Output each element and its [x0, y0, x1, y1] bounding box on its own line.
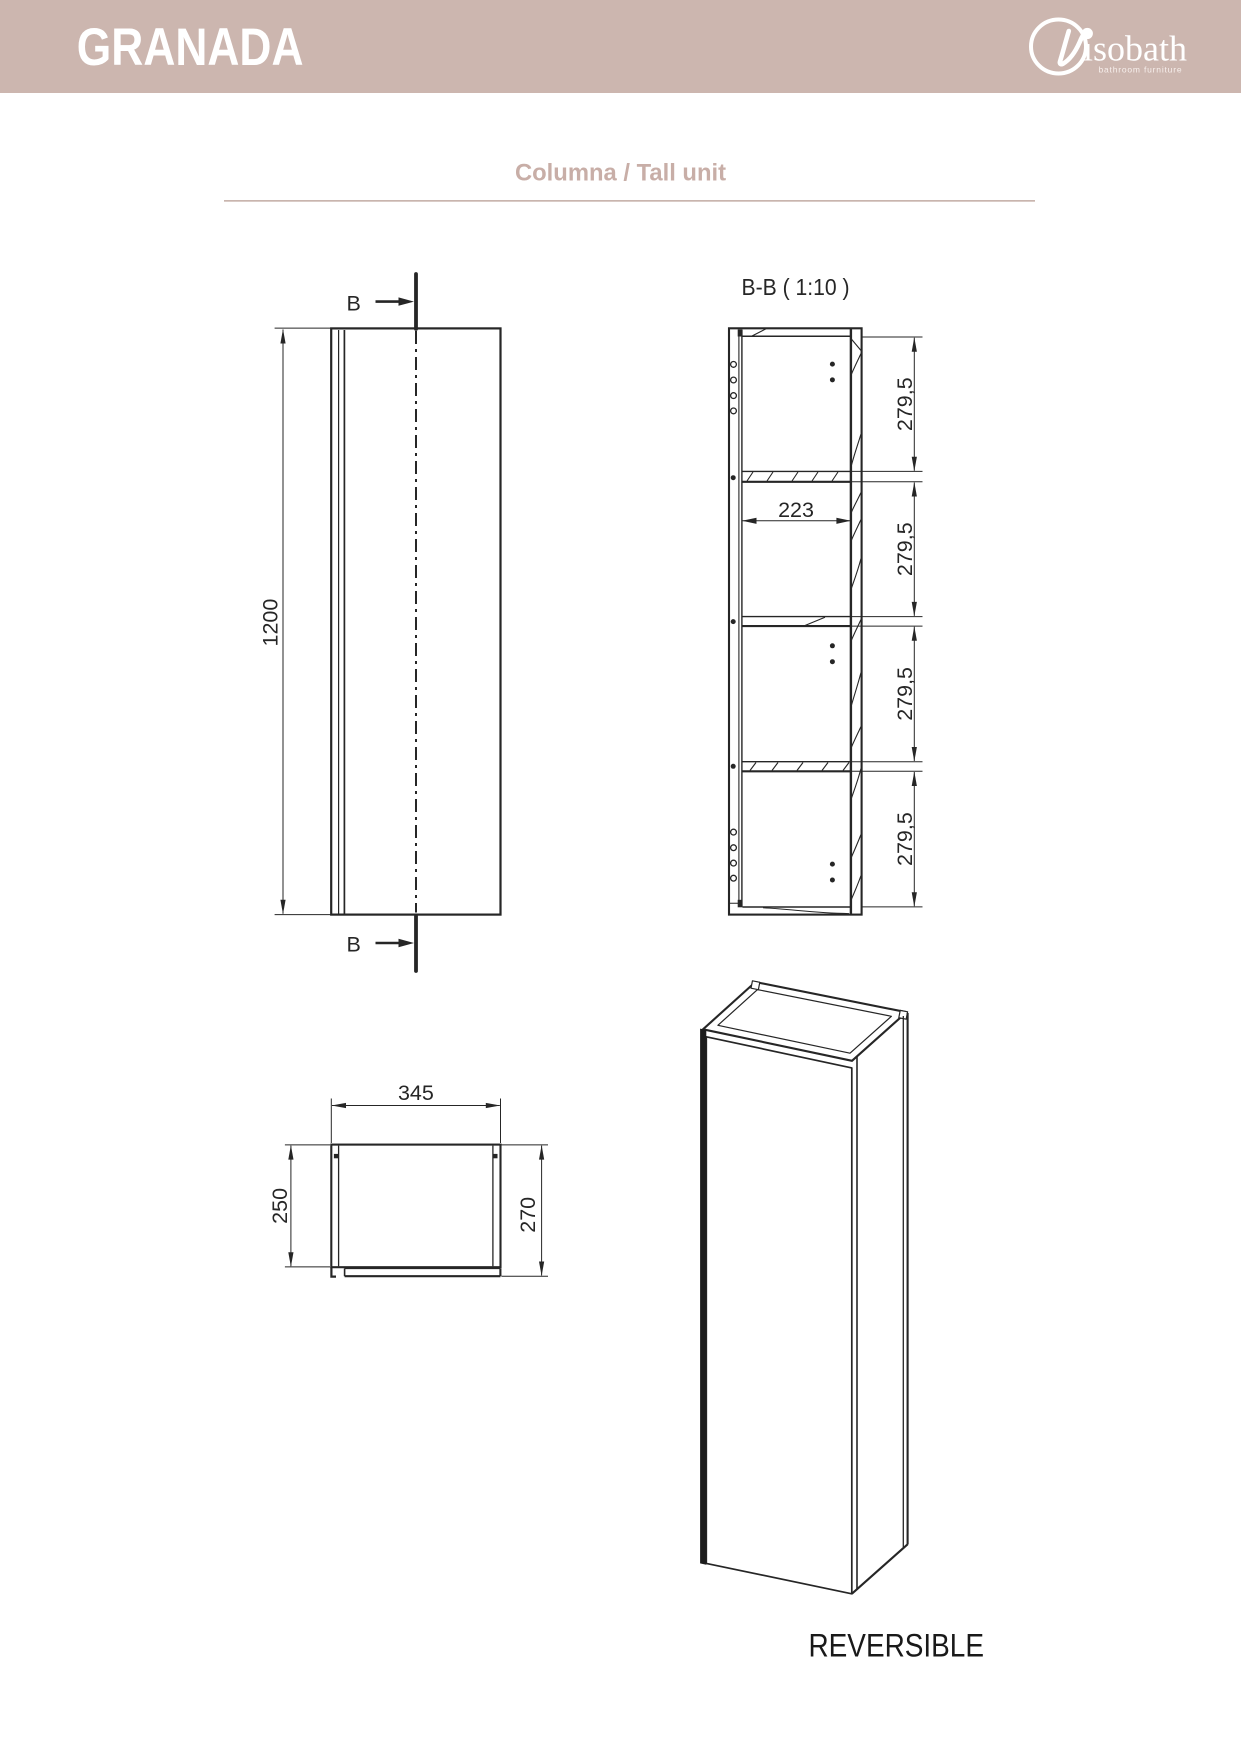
- svg-text:270: 270: [516, 1197, 540, 1233]
- svg-text:345: 345: [398, 1081, 434, 1105]
- svg-text:250: 250: [268, 1188, 292, 1224]
- svg-text:223: 223: [778, 498, 814, 522]
- svg-text:Columna / Tall unit: Columna / Tall unit: [515, 160, 726, 187]
- svg-text:B: B: [347, 933, 361, 957]
- svg-text:GRANADA: GRANADA: [77, 19, 304, 77]
- svg-text:B: B: [347, 291, 361, 315]
- svg-text:279,5: 279,5: [893, 812, 917, 866]
- svg-text:B-B ( 1:10 ): B-B ( 1:10 ): [742, 274, 850, 300]
- svg-text:1200: 1200: [258, 599, 282, 647]
- svg-text:bathroom furniture: bathroom furniture: [1099, 65, 1183, 75]
- svg-text:279,5: 279,5: [893, 377, 917, 431]
- svg-text:279,5: 279,5: [893, 522, 917, 576]
- svg-text:REVERSIBLE: REVERSIBLE: [809, 1629, 984, 1664]
- svg-text:279,5: 279,5: [893, 667, 917, 721]
- svg-text:ısobath: ısobath: [1083, 29, 1187, 69]
